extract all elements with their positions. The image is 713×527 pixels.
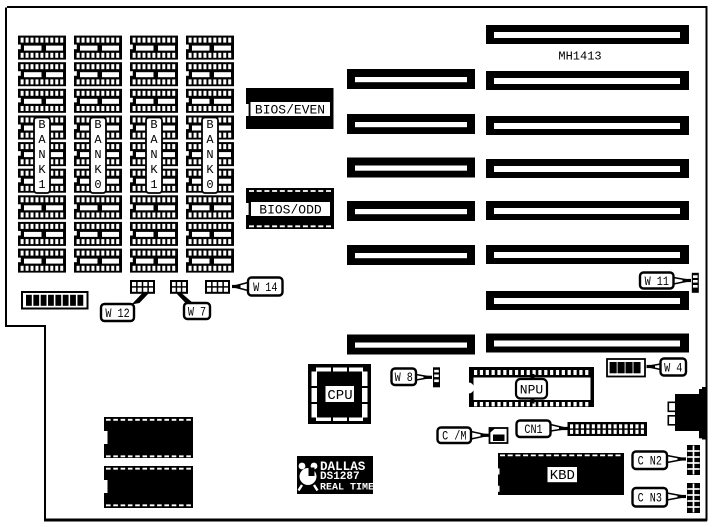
svg-text:N: N [150,148,157,162]
svg-text:B: B [206,118,213,132]
svg-text:W 4: W 4 [664,361,682,375]
svg-text:BIOS/ODD: BIOS/ODD [259,202,322,217]
svg-text:W 14: W 14 [253,281,277,295]
svg-text:N: N [206,148,213,162]
svg-text:K: K [150,163,158,177]
svg-text:REAL TIME: REAL TIME [320,483,374,494]
svg-text:CPU: CPU [327,388,352,404]
svg-text:W 12: W 12 [105,307,129,321]
svg-text:B: B [38,118,45,132]
svg-text:0: 0 [206,178,213,192]
svg-text:C N2: C N2 [638,455,662,469]
svg-text:K: K [206,163,214,177]
svg-text:A: A [94,133,102,147]
svg-text:DS1287: DS1287 [320,471,360,483]
svg-text:MH1413: MH1413 [558,49,601,63]
svg-text:1: 1 [38,178,45,192]
svg-text:CN1: CN1 [524,423,542,437]
svg-text:KBD: KBD [550,468,575,484]
svg-text:W 8: W 8 [395,371,413,385]
svg-text:W 11: W 11 [645,275,669,289]
svg-text:0: 0 [94,178,101,192]
svg-text:B: B [94,118,101,132]
svg-text:B: B [150,118,157,132]
svg-text:W 7: W 7 [188,305,206,319]
svg-text:BIOS/EVEN: BIOS/EVEN [255,102,325,117]
svg-text:N: N [94,148,101,162]
svg-text:C N3: C N3 [638,492,662,506]
svg-text:A: A [38,133,46,147]
svg-text:A: A [206,133,214,147]
svg-text:C /M: C /M [442,430,466,444]
svg-text:K: K [38,163,46,177]
svg-text:1: 1 [150,178,157,192]
svg-text:K: K [94,163,102,177]
svg-text:NPU: NPU [520,382,543,397]
svg-text:A: A [150,133,158,147]
svg-text:N: N [38,148,45,162]
